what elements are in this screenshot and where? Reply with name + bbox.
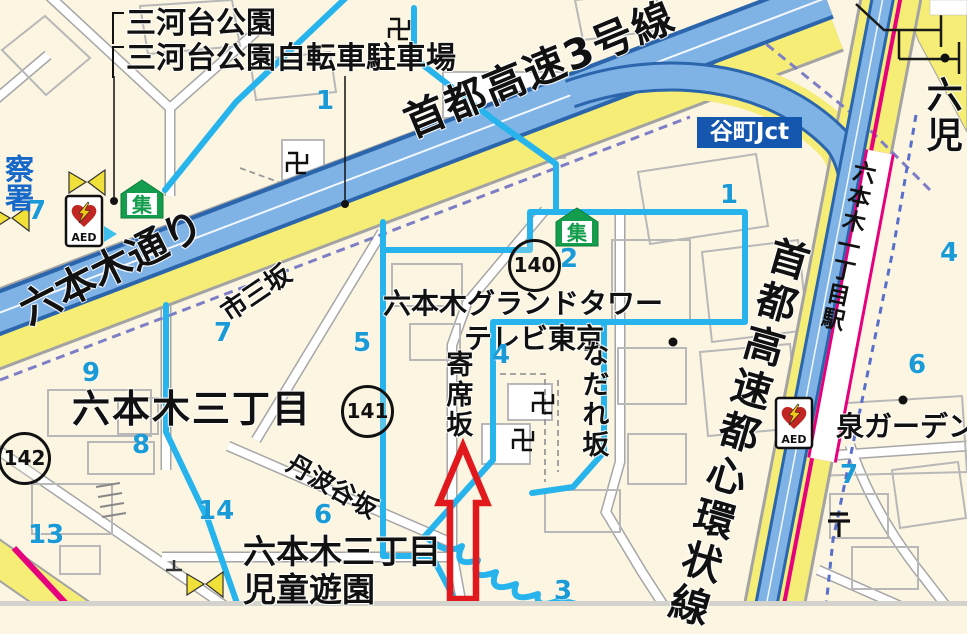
clipped-label-box <box>930 0 967 15</box>
circled-number-140: 140 <box>508 239 561 292</box>
lot-number: 4 <box>940 238 958 268</box>
aed-icon: AED <box>66 196 102 246</box>
lot-number: 9 <box>82 358 100 388</box>
label-partial-right-edge: 六児 <box>922 76 960 156</box>
lot-number: 7 <box>28 196 46 226</box>
lot-number: 6 <box>314 500 332 530</box>
label-izumi-garden: 泉ガーデン <box>836 412 967 441</box>
label-tanimachi-jct: 谷町Jct <box>697 117 802 148</box>
svg-text:集: 集 <box>566 221 588 245</box>
lot-number: 6 <box>908 350 926 380</box>
label-jido-yuen: 児童遊園 <box>243 573 375 608</box>
label-roppongi-3chome: 六本木三丁目 <box>72 390 312 430</box>
label-roppongi-3chome-south: 六本木三丁目 <box>243 535 441 570</box>
lot-number: 2 <box>560 244 578 274</box>
lot-number: 5 <box>353 328 371 358</box>
svg-text:AED: AED <box>781 433 806 446</box>
screenshot-edge-strip <box>0 601 967 606</box>
lot-number: 13 <box>28 520 64 550</box>
label-mikawadai-bike-parking: 三河台公園自転車駐車場 <box>126 43 456 75</box>
lot-number: 3 <box>554 576 572 606</box>
label-nadare-zaka: なだれ坂 <box>578 340 606 460</box>
label-bracket <box>112 12 124 44</box>
label-bracket <box>112 46 124 78</box>
circled-number-141: 141 <box>341 385 394 438</box>
lot-number: 4 <box>492 340 510 370</box>
lot-number: 14 <box>198 496 234 526</box>
label-yose-zaka: 寄席坂 <box>442 350 470 440</box>
lot-number: 1 <box>316 86 334 116</box>
lot-number: 8 <box>132 430 150 460</box>
lot-number: 1 <box>720 180 738 210</box>
label-roppongi-grand-tower: 六本木グランドタワー <box>383 289 663 318</box>
aed-icon: AED <box>776 398 812 448</box>
circled-number-142: 142 <box>0 432 51 485</box>
label-mikawadai-park: 三河台公園 <box>126 8 276 40</box>
svg-text:AED: AED <box>71 231 96 244</box>
map-canvas[interactable]: AED AED 集 集 三河台公園 三河台公園自転車駐車場 首都高速3号線 谷町… <box>0 0 967 606</box>
lot-number: 7 <box>214 318 232 348</box>
svg-text:集: 集 <box>131 193 153 217</box>
lot-number: 7 <box>840 460 858 490</box>
